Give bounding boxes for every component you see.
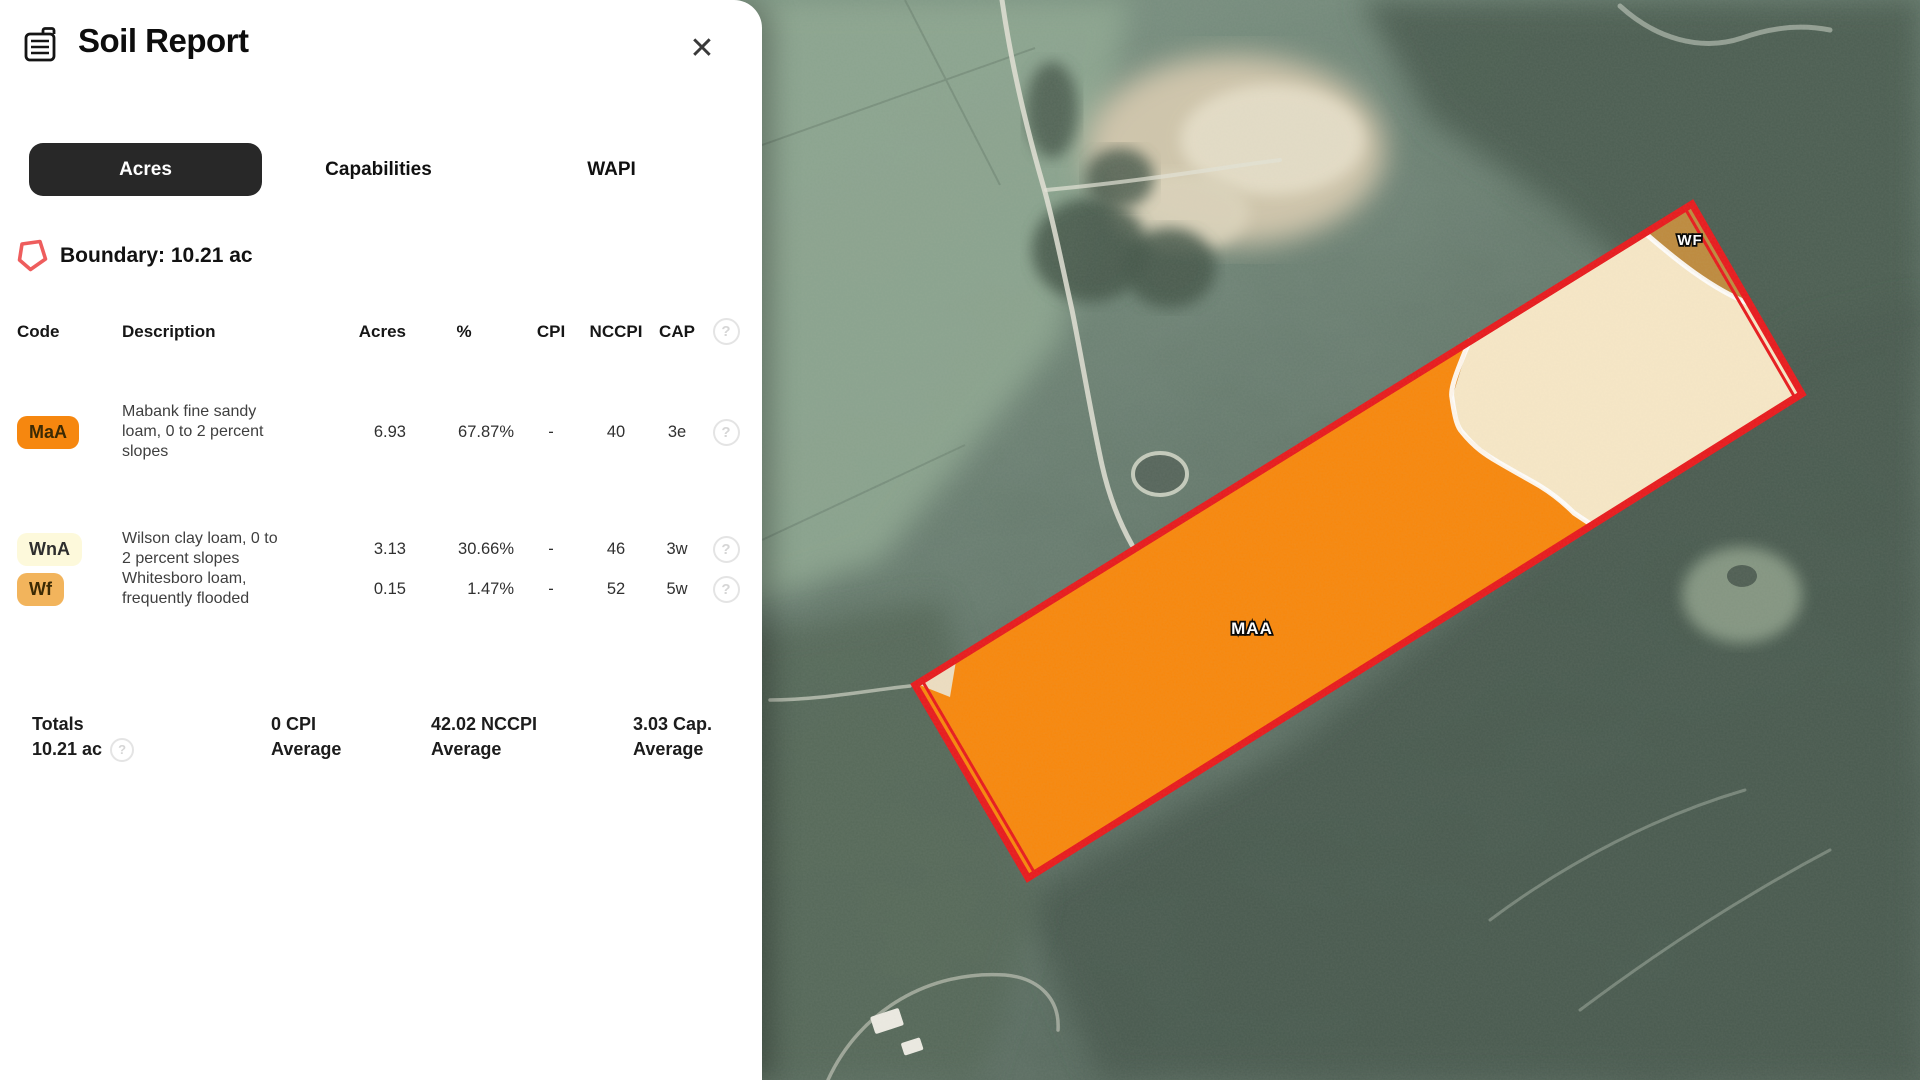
soil-cpi: - (518, 540, 584, 559)
soil-nccpi: 40 (584, 423, 648, 442)
tab-capabilities[interactable]: Capabilities (262, 143, 495, 196)
tab-wapi[interactable]: WAPI (495, 143, 728, 196)
close-button[interactable]: ✕ (678, 24, 726, 72)
col-header-code: Code (17, 322, 122, 342)
totals-row: Totals 10.21 ac ? 0 CPI Average 42.02 NC… (32, 712, 732, 782)
soil-acres: 3.13 (302, 540, 410, 559)
totals-cap-value: 3.03 Cap. (633, 712, 712, 737)
soil-report-panel: Soil Report ✕ Acres Capabilities WAPI Bo… (0, 0, 762, 1080)
soil-percent: 1.47% (410, 580, 518, 599)
totals-cpi-value: 0 CPI (271, 712, 341, 737)
soil-description: Mabank fine sandy loam, 0 to 2 percent s… (122, 402, 302, 462)
table-row: WnA Wilson clay loam, 0 to 2 percent slo… (17, 529, 746, 569)
soil-cap: 3e (648, 423, 706, 442)
col-header-cap: CAP (648, 322, 706, 342)
page-title: Soil Report (78, 22, 249, 60)
soil-percent: 30.66% (410, 540, 518, 559)
col-header-description: Description (122, 322, 302, 342)
row-help-icon[interactable]: ? (713, 576, 740, 603)
totals-cap-label: Average (633, 737, 712, 762)
tab-acres[interactable]: Acres (29, 143, 262, 196)
tab-bar: Acres Capabilities WAPI (29, 143, 728, 196)
row-help-icon[interactable]: ? (713, 536, 740, 563)
soil-cpi: - (518, 580, 584, 599)
report-icon (22, 26, 60, 71)
totals-nccpi-label: Average (431, 737, 537, 762)
close-icon: ✕ (689, 31, 714, 66)
soil-cap: 3w (648, 540, 706, 559)
col-header-acres: Acres (302, 322, 410, 342)
soil-cap: 5w (648, 580, 706, 599)
row-help-icon[interactable]: ? (713, 419, 740, 446)
totals-nccpi-value: 42.02 NCCPI (431, 712, 537, 737)
header-help-icon[interactable]: ? (713, 318, 740, 345)
soil-acres: 0.15 (302, 580, 410, 599)
soil-description: Whitesboro loam, frequently flooded (122, 569, 302, 609)
soil-cpi: - (518, 423, 584, 442)
soil-code-badge: WnA (17, 533, 82, 566)
soil-nccpi: 52 (584, 580, 648, 599)
boundary-row: Boundary: 10.21 ac (14, 238, 253, 274)
col-header-percent: % (410, 322, 518, 342)
totals-help-icon[interactable]: ? (110, 738, 134, 762)
soil-code-badge: Wf (17, 573, 64, 606)
soil-code-badge: MaA (17, 416, 79, 449)
table-row: MaA Mabank fine sandy loam, 0 to 2 perce… (17, 402, 746, 462)
col-header-nccpi: NCCPI (584, 322, 648, 342)
totals-label: Totals (32, 712, 134, 737)
totals-cpi-label: Average (271, 737, 341, 762)
soil-percent: 67.87% (410, 423, 518, 442)
totals-acres: 10.21 ac (32, 737, 102, 762)
table-header: Code Description Acres % CPI NCCPI CAP ? (17, 318, 746, 345)
soil-table: Code Description Acres % CPI NCCPI CAP ?… (17, 318, 746, 609)
boundary-polygon-icon (14, 238, 50, 274)
table-row: Wf Whitesboro loam, frequently flooded 0… (17, 569, 746, 609)
soil-acres: 6.93 (302, 423, 410, 442)
col-header-cpi: CPI (518, 322, 584, 342)
soil-description: Wilson clay loam, 0 to 2 percent slopes (122, 529, 302, 569)
boundary-label: Boundary: 10.21 ac (60, 244, 253, 268)
soil-nccpi: 46 (584, 540, 648, 559)
